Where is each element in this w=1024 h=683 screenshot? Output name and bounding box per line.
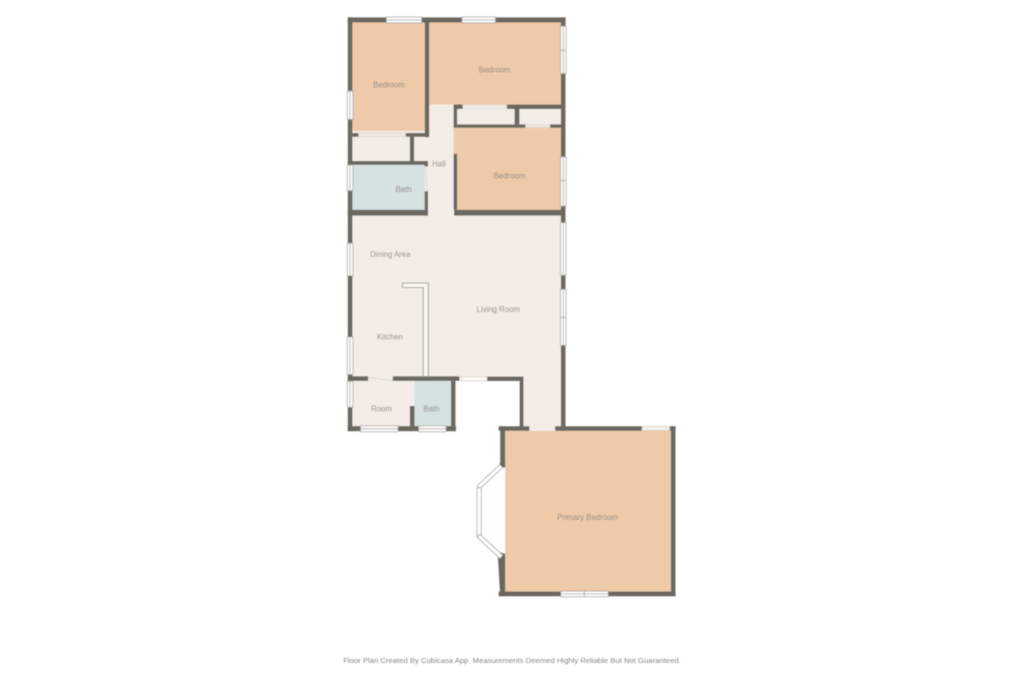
svg-text:Bath: Bath [423,405,439,414]
svg-text:Room: Room [371,405,392,414]
svg-text:Kitchen: Kitchen [377,333,403,342]
svg-text:Bedroom: Bedroom [479,65,511,74]
svg-text:Bedroom: Bedroom [494,171,526,180]
svg-text:Bath: Bath [395,185,411,194]
svg-text:Hall: Hall [432,160,446,169]
svg-text:Dining Area: Dining Area [370,250,411,259]
svg-text:Floor Plan Created By Cubicasa: Floor Plan Created By Cubicasa App. Meas… [343,656,681,665]
svg-text:Bedroom: Bedroom [373,80,405,89]
svg-text:Living Room: Living Room [477,305,520,314]
svg-text:Primary Bedroom: Primary Bedroom [557,513,618,522]
